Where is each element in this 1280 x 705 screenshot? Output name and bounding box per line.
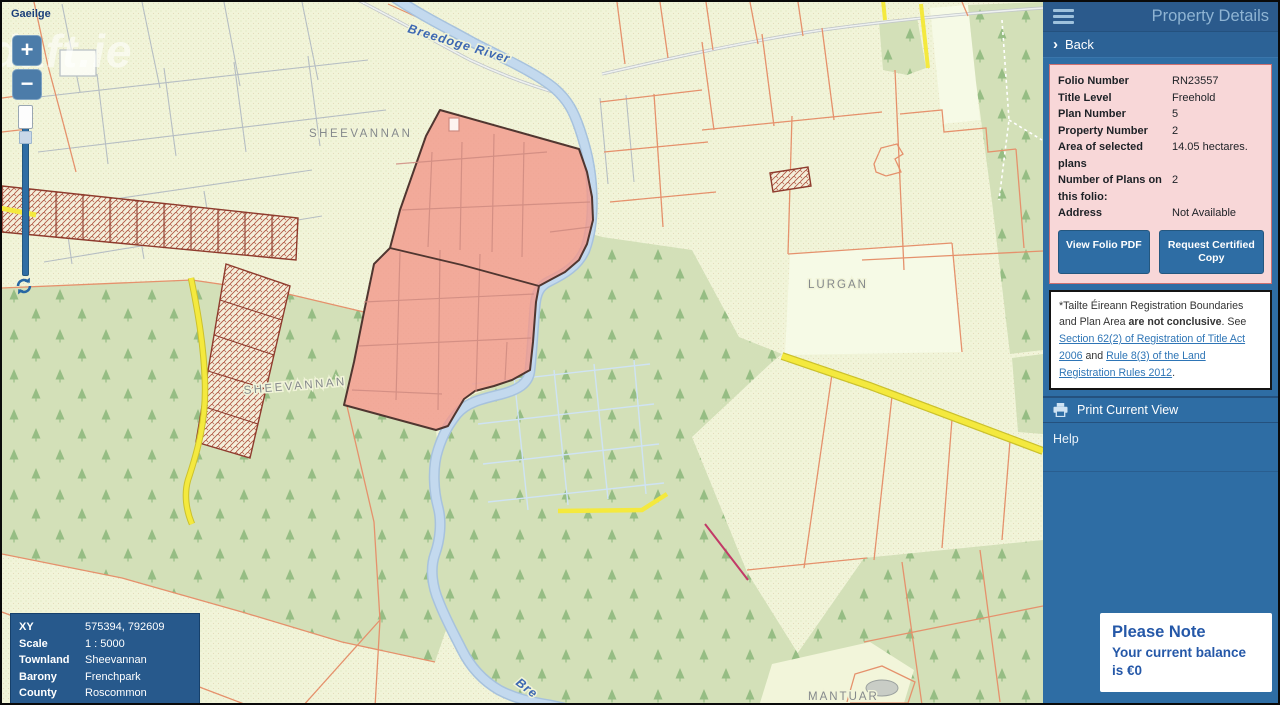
townland-label: SHEEVANNAN	[309, 128, 412, 140]
property-details-card: Folio NumberRN23557 Title LevelFreehold …	[1049, 64, 1272, 284]
detail-value: 5	[1172, 106, 1264, 123]
detail-label: Number of Plans on this folio:	[1058, 172, 1172, 205]
info-value: Roscommon	[85, 685, 191, 702]
language-link[interactable]: Gaeilge	[11, 8, 51, 20]
chevron-right-icon: ›	[1053, 37, 1058, 52]
info-label: Barony	[19, 669, 85, 686]
notice-title: Please Note	[1112, 623, 1260, 642]
info-label: Townland	[19, 652, 85, 669]
detail-label: Folio Number	[1058, 73, 1172, 90]
help-link[interactable]: Help	[1043, 423, 1278, 472]
back-button[interactable]: › Back	[1043, 31, 1278, 58]
detail-value: 2	[1172, 172, 1264, 205]
zoom-slider-handle[interactable]	[18, 105, 33, 129]
notice-body: Your current balance is €0	[1112, 644, 1260, 680]
map-canvas[interactable]: SHEEVANNAN SHEEVANNAN LURGAN MANTUAR Bre…	[2, 2, 1043, 703]
map-info-box: XY575394, 792609 Scale1 : 5000 TownlandS…	[10, 613, 200, 703]
townland-label: LURGAN	[808, 279, 868, 291]
detail-label: Plan Number	[1058, 106, 1172, 123]
detail-value: Not Available	[1172, 205, 1264, 222]
info-label: County	[19, 685, 85, 702]
request-certified-copy-button[interactable]: Request Certified Copy	[1159, 230, 1264, 274]
detail-label: Area of selected plans	[1058, 139, 1172, 172]
detail-label: Property Number	[1058, 123, 1172, 140]
printer-icon	[1053, 403, 1068, 417]
print-current-view-button[interactable]: Print Current View	[1043, 396, 1278, 423]
zoom-slider-step	[19, 131, 32, 144]
detail-label: Address	[1058, 205, 1172, 222]
view-folio-pdf-button[interactable]: View Folio PDF	[1058, 230, 1150, 274]
info-label: XY	[19, 619, 85, 636]
info-value: 575394, 792609	[85, 619, 191, 636]
app-window: SHEEVANNAN SHEEVANNAN LURGAN MANTUAR Bre…	[0, 0, 1280, 705]
detail-label: Title Level	[1058, 90, 1172, 107]
detail-value: Freehold	[1172, 90, 1264, 107]
menu-icon[interactable]	[1053, 9, 1074, 24]
info-label: Scale	[19, 636, 85, 653]
zoom-in-button[interactable]: +	[12, 35, 42, 66]
info-value: Sheevannan	[85, 652, 191, 669]
balance-notice: Please Note Your current balance is €0	[1100, 613, 1272, 692]
info-value: Frenchpark	[85, 669, 191, 686]
detail-value: 2	[1172, 123, 1264, 140]
refresh-icon[interactable]	[13, 275, 35, 297]
panel-header: Property Details	[1043, 2, 1278, 31]
detail-value: 14.05 hectares.	[1172, 139, 1264, 172]
townland-label: MANTUAR	[808, 691, 879, 703]
panel-title: Property Details	[1152, 7, 1278, 26]
info-value: 1 : 5000	[85, 636, 191, 653]
building-footprint	[60, 50, 96, 76]
property-details-panel: Property Details › Back Folio NumberRN23…	[1043, 2, 1278, 703]
disclaimer-note: *Tailte Éireann Registration Boundaries …	[1049, 290, 1272, 391]
zoom-out-button[interactable]: −	[12, 69, 42, 100]
detail-value: RN23557	[1172, 73, 1264, 90]
